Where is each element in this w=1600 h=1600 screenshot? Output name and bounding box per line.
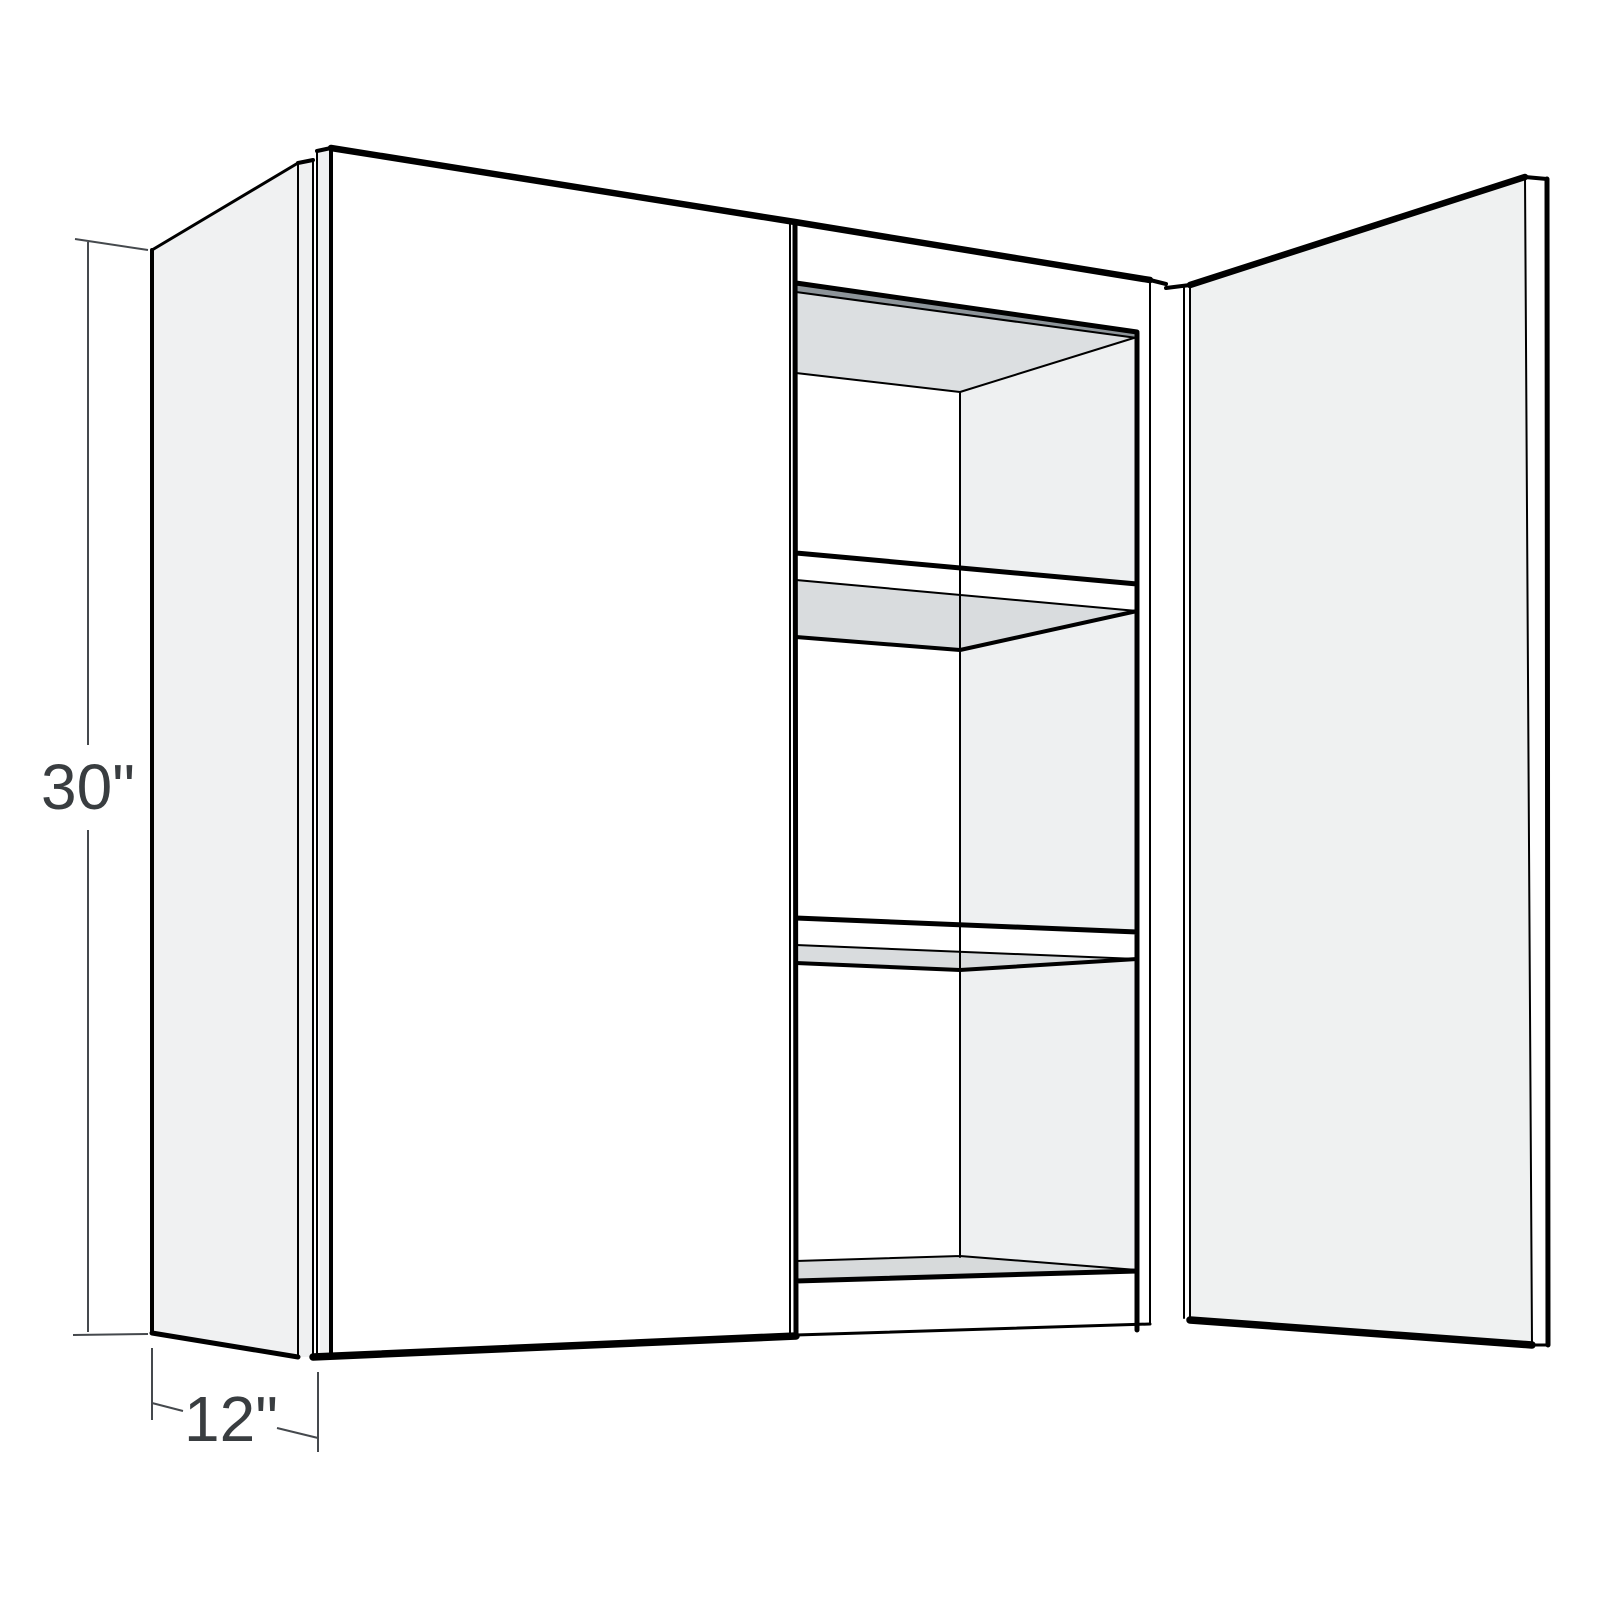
height-dimension-label: 30"	[41, 751, 135, 823]
interior-right-wall	[960, 337, 1137, 1271]
height-dimension: 30"	[41, 239, 148, 1335]
side-panel-front-edge	[298, 160, 313, 1357]
cabinet-diagram-svg: 30" 12"	[0, 0, 1600, 1600]
depth-dimension-label: 12"	[184, 1383, 278, 1455]
right-door-inner-face	[1190, 177, 1532, 1345]
depth-dimension: 12"	[152, 1348, 318, 1455]
left-side-panel	[152, 163, 298, 1357]
left-door-face	[331, 148, 796, 1356]
left-door-hinge-edge	[317, 148, 331, 1357]
interior-back-wall	[796, 373, 960, 1262]
cabinet-diagram: 30" 12"	[0, 0, 1600, 1600]
